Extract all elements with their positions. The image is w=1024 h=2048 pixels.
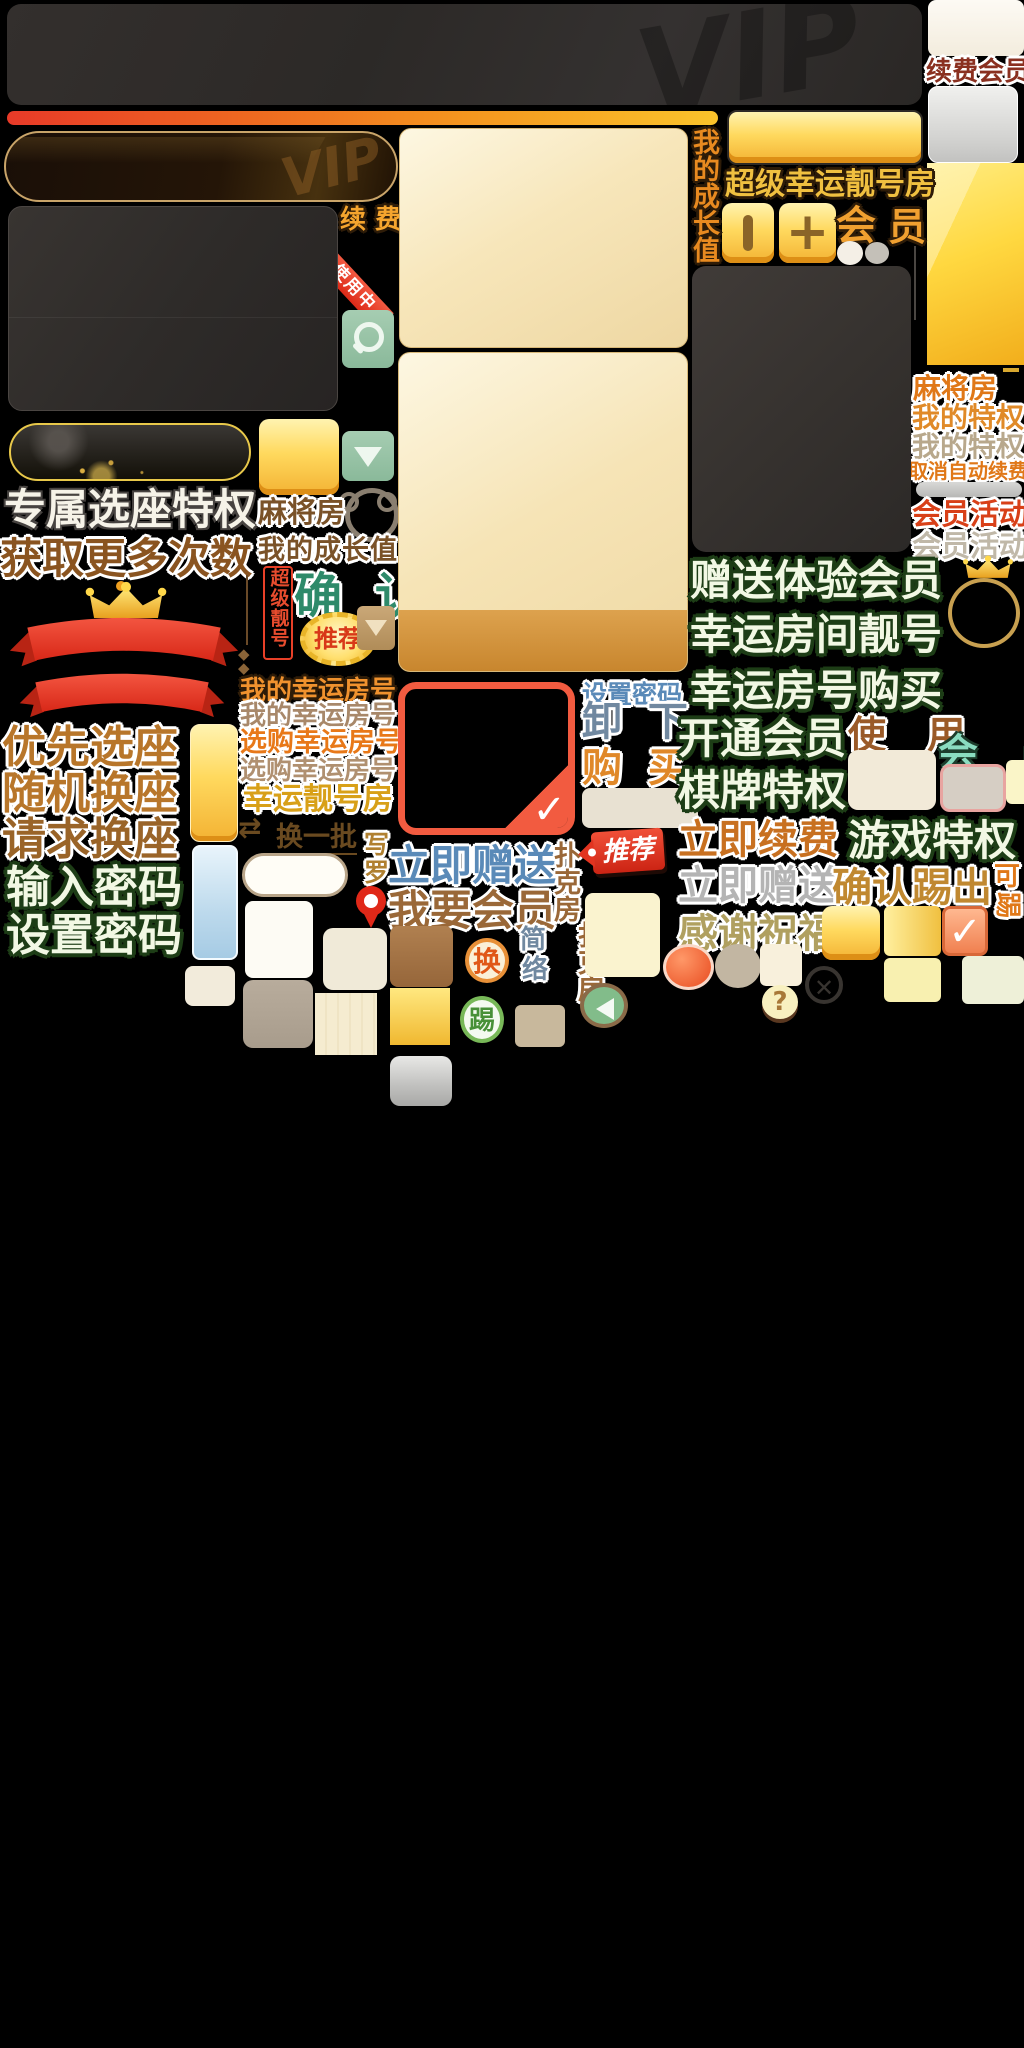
beige-square [185, 966, 235, 1006]
plus-icon: + [786, 202, 830, 262]
gray-ball [715, 944, 761, 988]
stepper-minus-button[interactable] [722, 203, 774, 263]
down-arrow-icon [354, 447, 382, 467]
pink-outline-square[interactable] [940, 764, 1006, 812]
sprite-atlas-canvas: VIP VIP 续 费 使用中 专属选座特权 获取更多次数 [0, 0, 1024, 2048]
down-arrow-icon [365, 620, 387, 636]
vip-banner-pill: VIP [4, 131, 398, 202]
cream-panel-top [399, 128, 688, 348]
kick-coin-label: 踢 [469, 1006, 495, 1036]
bar-icon [743, 215, 753, 251]
label-my-lucky-number-2: 我的幸运房号 [240, 703, 396, 729]
char-jian: 简 [520, 927, 546, 953]
label-my-privilege-2: 我的特权 [912, 433, 1024, 461]
label-cancel-auto-renew: 取消自动续费 [908, 461, 1024, 481]
label-confirm-kick: 确认踢出 [832, 868, 992, 908]
label-enter-password: 输入密码 [6, 866, 182, 910]
label-gift-now-silver: 立即赠送 [678, 866, 838, 906]
red-ribbon-banner [6, 616, 242, 674]
kick-coin-button[interactable]: 踢 [460, 996, 504, 1043]
label-open-membership: 开通会员 [678, 718, 846, 760]
label-random-seat: 随机换座 [2, 772, 178, 816]
label-my-privilege-1: 我的特权 [912, 404, 1024, 432]
cream-rounded-square [848, 750, 936, 810]
dark-panel-right [692, 266, 911, 552]
label-growth-value-vert: 我的成长值 [690, 128, 717, 263]
vertical-divider [246, 575, 248, 645]
back-arrow-icon [596, 998, 614, 1020]
white-rect [245, 901, 313, 978]
orange-checkbox[interactable]: ✓ [942, 906, 988, 956]
label-buy-lucky-number-2: 选购幸运房号 [240, 758, 396, 784]
label-board-privilege: 棋牌特权 [678, 770, 846, 812]
super-number-label: 超级靓号 [269, 568, 288, 658]
char-xie: 写 [364, 832, 389, 857]
char-luo2: 络 [522, 957, 548, 983]
label-lucky-number-room: 幸运靓号房 [243, 785, 393, 815]
tan-square-2 [515, 1005, 565, 1047]
gold-panel-right [927, 163, 1024, 365]
blue-vertical-button[interactable] [192, 845, 238, 960]
silver-bottom-button[interactable] [390, 1056, 452, 1106]
gray-circle-small [865, 242, 889, 264]
pale-yellow-square-b [884, 958, 941, 1002]
cream-stripe-rect [315, 993, 377, 1055]
swap-icon[interactable]: ⇄ [238, 814, 261, 842]
panel-footer-strip [399, 610, 687, 671]
label-poker-room-1: 扑克房 [551, 841, 578, 922]
dark-panel-left [8, 206, 338, 411]
gold-vertical-button[interactable] [190, 724, 238, 842]
check-icon: ✓ [532, 790, 566, 830]
black-gold-pill [9, 423, 251, 481]
recommend-tag-label: 推荐 [601, 836, 655, 866]
stepper-plus-button[interactable]: + [779, 203, 836, 263]
question-coin[interactable]: ? [762, 985, 798, 1019]
search-button[interactable] [342, 310, 394, 368]
label-kickable-ke: 可 [994, 864, 1020, 890]
label-member-events-1: 会员活动 [912, 500, 1024, 529]
cream-square-small [760, 944, 802, 986]
label-priority-seat: 优先选座 [2, 726, 178, 770]
pale-yellow-rect [585, 893, 660, 977]
ring-outline [948, 578, 1020, 648]
brown-square [390, 926, 453, 987]
gold-square-c[interactable] [390, 988, 450, 1045]
label-lucky-room-number: 幸运房间靓号 [690, 614, 942, 656]
question-icon: ? [772, 987, 787, 1017]
label-growth-value-mid: 我的成长值 [258, 537, 398, 564]
top-dark-panel: VIP [7, 4, 922, 105]
salmon-ball [663, 944, 714, 990]
tan-gray-square [243, 980, 313, 1048]
gold-square-button[interactable] [259, 419, 339, 495]
label-exclusive-seat: 专属选座特权 [4, 489, 256, 531]
label-gift-now-blue: 立即赠送 [388, 845, 556, 887]
pin-icon [356, 886, 388, 928]
check-icon: ✓ [948, 909, 982, 955]
renew-label: 续 费 [340, 207, 401, 233]
white-circle [837, 241, 863, 265]
diamond-icon: ◆◆ [238, 648, 250, 675]
gold-square-b[interactable] [822, 906, 880, 960]
label-mahjong-room-mid: 麻将房 [258, 498, 345, 527]
char-hui: 会 [836, 206, 876, 246]
gold-gradient-square[interactable] [884, 906, 941, 956]
recommend-tag: 推荐 [591, 828, 666, 875]
label-buy-lucky-number-1: 选购幸运房号 [240, 729, 402, 756]
gradient-bar [7, 111, 718, 125]
dropdown-button[interactable] [342, 431, 394, 481]
label-mahjong-room-right: 麻将房 [913, 375, 997, 403]
silver-pill [916, 482, 1022, 497]
close-circle-icon[interactable]: ✕ [805, 966, 843, 1004]
white-button[interactable] [928, 0, 1024, 56]
silver-panel [928, 86, 1018, 163]
pale-yellow-corner [1006, 760, 1024, 804]
pale-green-square [962, 956, 1024, 1004]
label-get-more-times: 获取更多次数 [0, 538, 252, 580]
face-outline-icon [343, 482, 393, 534]
thin-vline [914, 246, 916, 320]
char-luo: 罗 [364, 860, 389, 885]
back-arrow-button[interactable] [580, 983, 628, 1028]
label-lucky-number-buy: 幸运房号购买 [690, 670, 942, 712]
cream-panel-bottom [398, 352, 688, 672]
gold-wide-button[interactable] [727, 110, 923, 165]
super-number-tag: 超级靓号 [263, 566, 293, 660]
close-icon: ✕ [814, 974, 834, 1002]
label-kickable-ti: 踢 [994, 892, 1020, 918]
gold-dash [1003, 368, 1019, 372]
label-gift-trial-membership: 赠送体验会员 [690, 560, 942, 602]
beige-square-mid [323, 928, 387, 990]
label-renew-membership: 续费会员 [926, 59, 1024, 85]
red-ribbon-banner [6, 672, 238, 724]
refresh-batch-link[interactable]: 换一批 [276, 824, 357, 855]
tan-down-button[interactable] [357, 606, 395, 650]
label-renew-now: 立即续费 [678, 820, 838, 860]
recommend-badge-label: 推荐 [314, 627, 362, 651]
label-super-lucky-room: 超级幸运靓号房 [725, 170, 935, 200]
swap-coin-button[interactable]: 换 [465, 938, 509, 983]
label-request-seat: 请求换座 [2, 818, 178, 862]
selection-outline-box[interactable]: ✓ [398, 682, 575, 835]
label-game-privilege: 游戏特权 [848, 820, 1016, 862]
label-set-password: 设置密码 [6, 914, 182, 958]
white-pill[interactable] [242, 853, 348, 897]
swap-coin-label: 换 [473, 945, 501, 978]
char-yuan: 员 [888, 208, 926, 246]
